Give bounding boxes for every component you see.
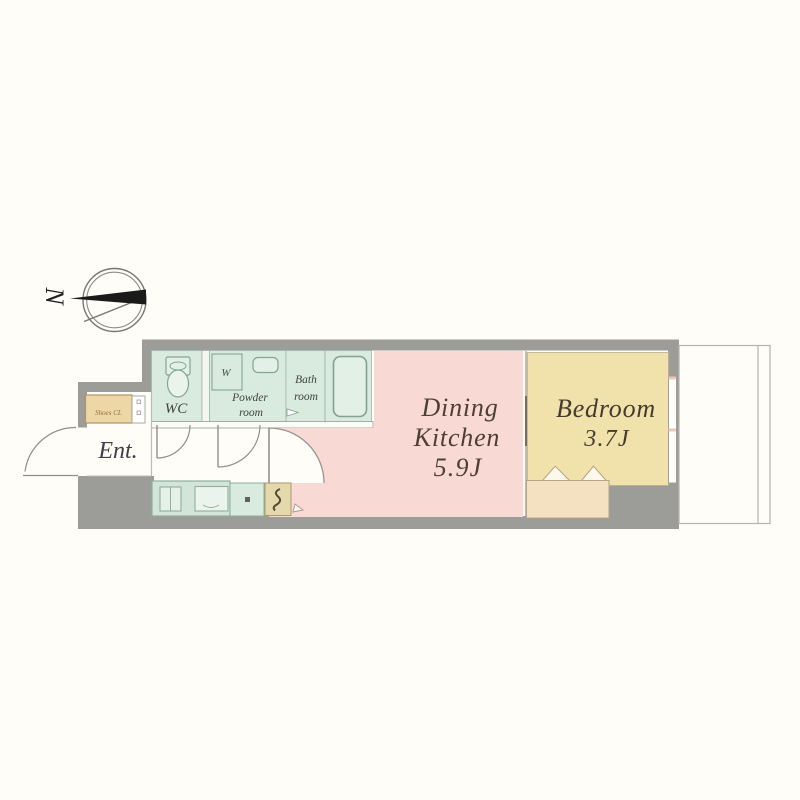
- svg-text:WC: WC: [165, 401, 188, 417]
- svg-text:room: room: [239, 407, 263, 419]
- svg-text:5.9J: 5.9J: [434, 453, 483, 482]
- svg-text:Kitchen: Kitchen: [413, 423, 500, 452]
- svg-text:N: N: [40, 286, 69, 306]
- svg-text:Shoes CL: Shoes CL: [95, 409, 122, 417]
- svg-text:room: room: [294, 391, 318, 403]
- svg-text:W: W: [221, 367, 231, 379]
- svg-text:3.7J: 3.7J: [583, 426, 630, 452]
- svg-text:Ent.: Ent.: [97, 438, 137, 464]
- svg-text:Dining: Dining: [420, 393, 498, 422]
- svg-text:Bath: Bath: [295, 374, 317, 386]
- svg-text:Bedroom: Bedroom: [556, 394, 656, 423]
- svg-text:Powder: Powder: [231, 392, 268, 404]
